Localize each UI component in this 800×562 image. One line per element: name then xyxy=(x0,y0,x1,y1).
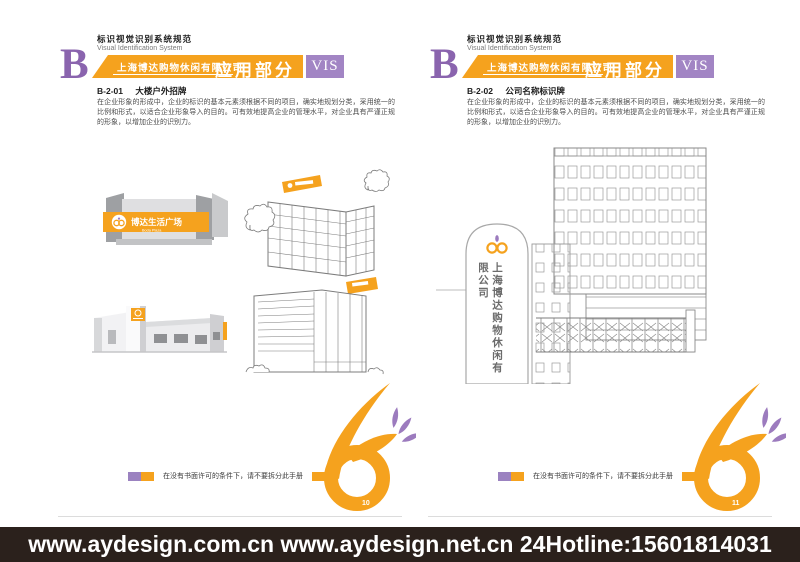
item-code: B-2-01 xyxy=(97,86,123,96)
header-orange-bar: 上海博达购物休闲有限公司 应用部分 xyxy=(462,55,673,78)
description-text: 在企业形象的形成中，企业的标识的基本元素须根据不同的项目，确实地规划分类，采用统… xyxy=(467,98,765,128)
six-brand-graphic: 10 xyxy=(298,382,416,514)
rooftop-sign xyxy=(346,277,378,294)
petal-accents xyxy=(761,407,786,444)
sketch-tower-illustration xyxy=(226,272,398,382)
vi-system-subtitle: Visual Identification System xyxy=(97,45,192,52)
page-bottom-edge xyxy=(428,516,772,517)
pylon-sign-text: 上海博达购物休闲有限公司 xyxy=(490,262,504,378)
hotline-text: www.aydesign.com.cn www.aydesign.net.cn … xyxy=(28,531,772,558)
page-left: 标识视觉识别系统规范 Visual Identification System … xyxy=(58,0,402,527)
applied-section-label: 应用部分 xyxy=(585,56,665,81)
handling-note: 在没有书面许可的条件下，请不要拆分此手册 xyxy=(533,471,673,481)
color-block-purple xyxy=(498,472,511,481)
vi-system-title: 标识视觉识别系统规范 xyxy=(97,33,192,45)
vi-system-heading: 标识视觉识别系统规范 Visual Identification System xyxy=(467,33,562,52)
item-title: 大楼户外招牌 xyxy=(135,86,186,96)
item-heading: B-2-01 大楼户外招牌 xyxy=(97,85,186,97)
plaza-sign-subtext: Boda Plaza xyxy=(142,229,162,233)
header-orange-bar: 上海博达购物休闲有限公司 应用部分 xyxy=(92,55,303,78)
vi-system-title: 标识视觉识别系统规范 xyxy=(467,33,562,45)
tree-sketch xyxy=(364,170,389,192)
campus-sketch-illustration xyxy=(436,138,716,384)
plaza-building-illustration: 博达生活广场 Boda Plaza xyxy=(86,182,236,260)
page-number: 10 xyxy=(362,500,370,507)
section-letter: B xyxy=(60,49,89,81)
petal-accents xyxy=(391,407,416,444)
description-text: 在企业形象的形成中，企业的标识的基本元素须根据不同的项目，确实地规划分类，采用统… xyxy=(97,98,395,128)
item-title: 公司名称标识牌 xyxy=(505,86,565,96)
color-block-orange xyxy=(141,472,154,481)
vi-manual-spread: 标识视觉识别系统规范 Visual Identification System … xyxy=(0,0,800,562)
six-brand-graphic: 11 xyxy=(668,382,786,514)
flat-building-illustration xyxy=(82,288,234,362)
handling-note: 在没有书面许可的条件下，请不要拆分此手册 xyxy=(163,471,303,481)
vi-system-heading: 标识视觉识别系统规范 Visual Identification System xyxy=(97,33,192,52)
page-right: 标识视觉识别系统规范 Visual Identification System … xyxy=(428,0,772,527)
vi-system-subtitle: Visual Identification System xyxy=(467,45,562,52)
hotline-bar: www.aydesign.com.cn www.aydesign.net.cn … xyxy=(0,527,800,562)
entrance-gate xyxy=(536,318,694,352)
vis-badge: VIS xyxy=(306,55,344,78)
gate-pillar xyxy=(686,310,695,352)
item-heading: B-2-02 公司名称标识牌 xyxy=(467,85,565,97)
item-code: B-2-02 xyxy=(467,86,493,96)
page-number: 11 xyxy=(732,500,740,507)
applied-section-label: 应用部分 xyxy=(215,56,295,81)
side-building xyxy=(532,244,570,384)
color-block-orange xyxy=(511,472,524,481)
section-letter: B xyxy=(430,49,459,81)
bush-sketch xyxy=(368,368,383,374)
plaza-sign-text: 博达生活广场 xyxy=(131,217,183,227)
main-building xyxy=(554,148,706,294)
color-block-purple xyxy=(128,472,141,481)
page-bottom-edge xyxy=(58,516,402,517)
vis-badge: VIS xyxy=(676,55,714,78)
